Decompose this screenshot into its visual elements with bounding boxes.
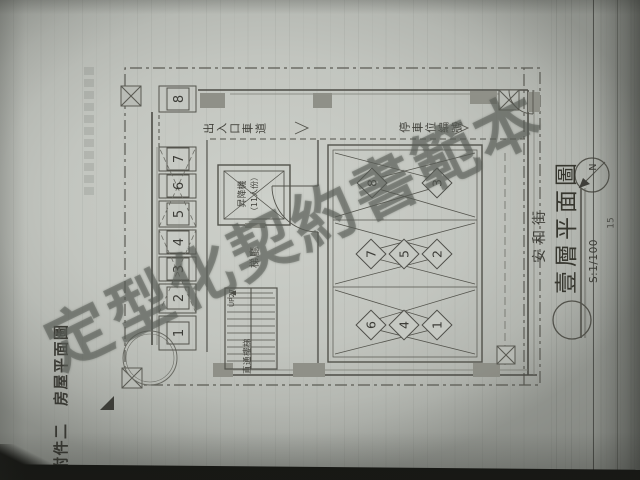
- stall-number: 1: [430, 321, 445, 329]
- stall-number: 6: [172, 182, 187, 190]
- drawing-title: 壹層平面圖: [554, 159, 580, 294]
- photo-corner-shadow: [0, 444, 60, 474]
- page-edge-line: [617, 0, 618, 480]
- driveway-entrance-label: 出入口車道: [203, 123, 267, 136]
- stall-number: 2: [430, 250, 445, 258]
- stall-number: 5: [397, 250, 412, 258]
- photographed-floor-plan-page: 1 2 3 4 5 6 7 8: [0, 0, 640, 480]
- street-name-label: 安和街: [532, 206, 548, 263]
- stall-number: 5: [172, 210, 187, 218]
- benchmark-triangle: [100, 396, 114, 410]
- stall-number: 7: [364, 250, 379, 258]
- stall-number: 8: [172, 95, 187, 103]
- stall-number: 7: [172, 155, 187, 163]
- direct-stairs-label: 直通樓梯: [244, 338, 254, 374]
- stall-number: 6: [364, 321, 379, 329]
- page-number: 15: [607, 217, 617, 228]
- stall-number: 4: [397, 321, 412, 329]
- page-stack-edge: [593, 0, 640, 480]
